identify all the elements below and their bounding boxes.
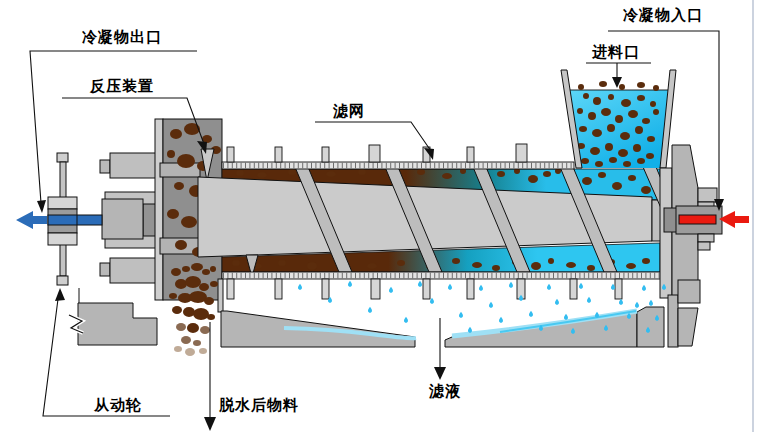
left-end-assembly [16,153,178,285]
inlet-arrow-icon [719,211,749,228]
label-filtrate: 滤液 [429,383,461,400]
label-condensate-outlet: 冷凝物出口 [82,29,162,46]
machine-body [16,70,749,356]
right-end-assembly [660,145,749,347]
machine-drawing [0,0,762,432]
label-back-pressure-device: 反压装置 [90,78,154,95]
label-condensate-inlet: 冷凝物入口 [623,7,703,24]
label-filter-screen: 滤网 [333,103,365,120]
outlet-arrow-icon [16,211,47,229]
label-driven-wheel: 从动轮 [94,397,142,414]
label-dewatered-material: 脱水后物料 [219,397,299,414]
diagram-canvas: 冷凝物出口 反压装置 滤网 进料口 冷凝物入口 从动轮 脱水后物料 滤液 [0,0,762,432]
left-pedestal [69,288,157,345]
label-feed-inlet: 进料口 [592,44,640,61]
